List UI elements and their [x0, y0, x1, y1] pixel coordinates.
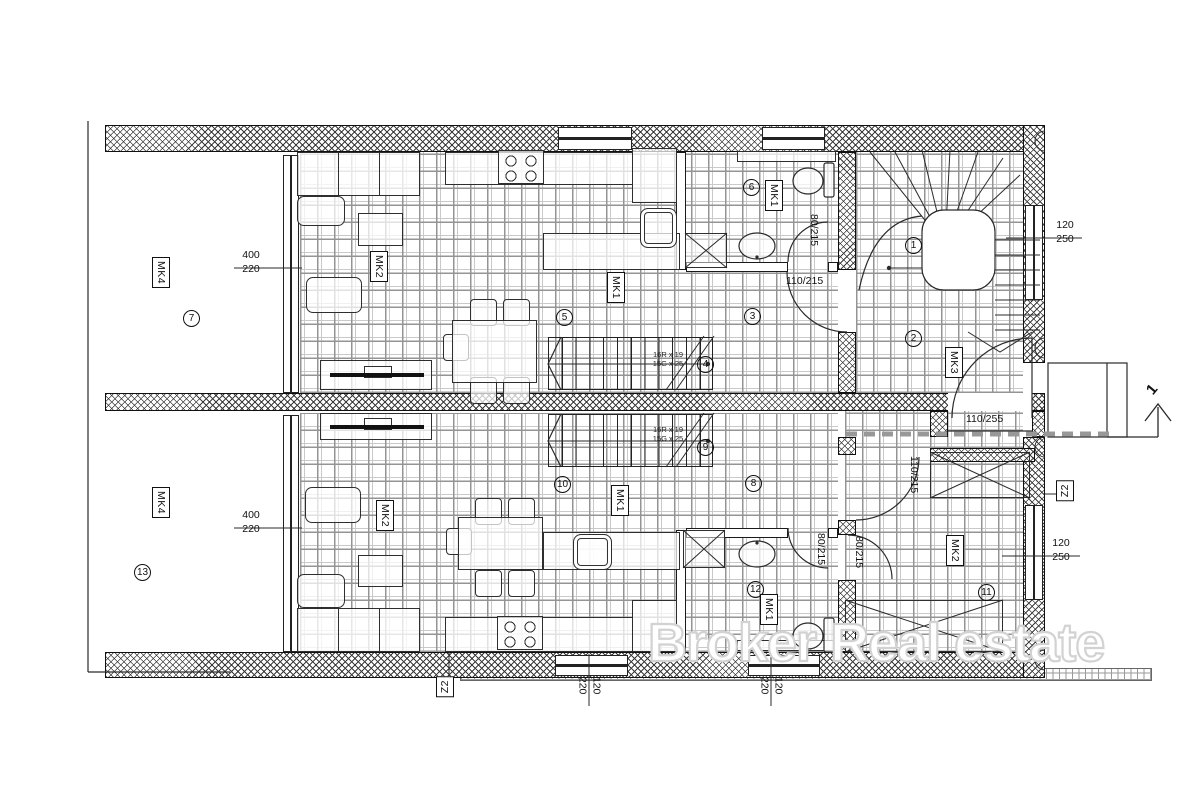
label-mk2: MK2	[946, 535, 964, 566]
room-number-7: 7	[183, 310, 200, 327]
door-dimension: 80/215	[853, 536, 865, 568]
room-number-11: 11	[978, 584, 995, 601]
window-dimension: 400220	[234, 509, 268, 536]
room-number-3: 3	[744, 308, 761, 325]
floor-plan-canvas: 12345678910111213MK4MK4MK2MK2MK1MK1MK1MK…	[0, 0, 1200, 800]
room-number-5: 5	[556, 309, 573, 326]
label-mk4: MK4	[152, 487, 170, 518]
label-mk1: MK1	[765, 180, 783, 211]
room-number-2: 2	[905, 330, 922, 347]
label-z2: Z2	[1056, 480, 1074, 501]
room-number-10: 10	[554, 476, 571, 493]
door-dimension: 110/255	[966, 413, 1003, 425]
window-dimension: 120250	[1044, 537, 1078, 564]
door-dimension: 80/215	[808, 214, 820, 246]
label-mk4: MK4	[152, 257, 170, 288]
watermark: Broker Real estate	[648, 612, 1104, 674]
room-number-13: 13	[134, 564, 151, 581]
window-dimension: 400220	[234, 249, 268, 276]
room-number-8: 8	[745, 475, 762, 492]
door-dimension: 110/215	[908, 456, 920, 493]
label-mk2: MK2	[376, 500, 394, 531]
stair-spec: 16R x 1915G x 25	[636, 350, 700, 369]
label-mk1: MK1	[611, 485, 629, 516]
room-number-1: 1	[905, 237, 922, 254]
label-mk2: MK2	[370, 251, 388, 282]
label-mk3: MK3	[945, 347, 963, 378]
stair-spec: 16R x 1915G x 25	[636, 425, 700, 444]
window-dimension: 120250	[1048, 219, 1082, 246]
label-mk1: MK1	[607, 272, 625, 303]
label-z2: Z2	[436, 676, 454, 697]
door-dimension: 110/215	[786, 275, 823, 287]
room-number-6: 6	[743, 179, 760, 196]
door-dimension: 80/215	[815, 533, 827, 565]
window-dimension: 120220	[575, 669, 602, 703]
